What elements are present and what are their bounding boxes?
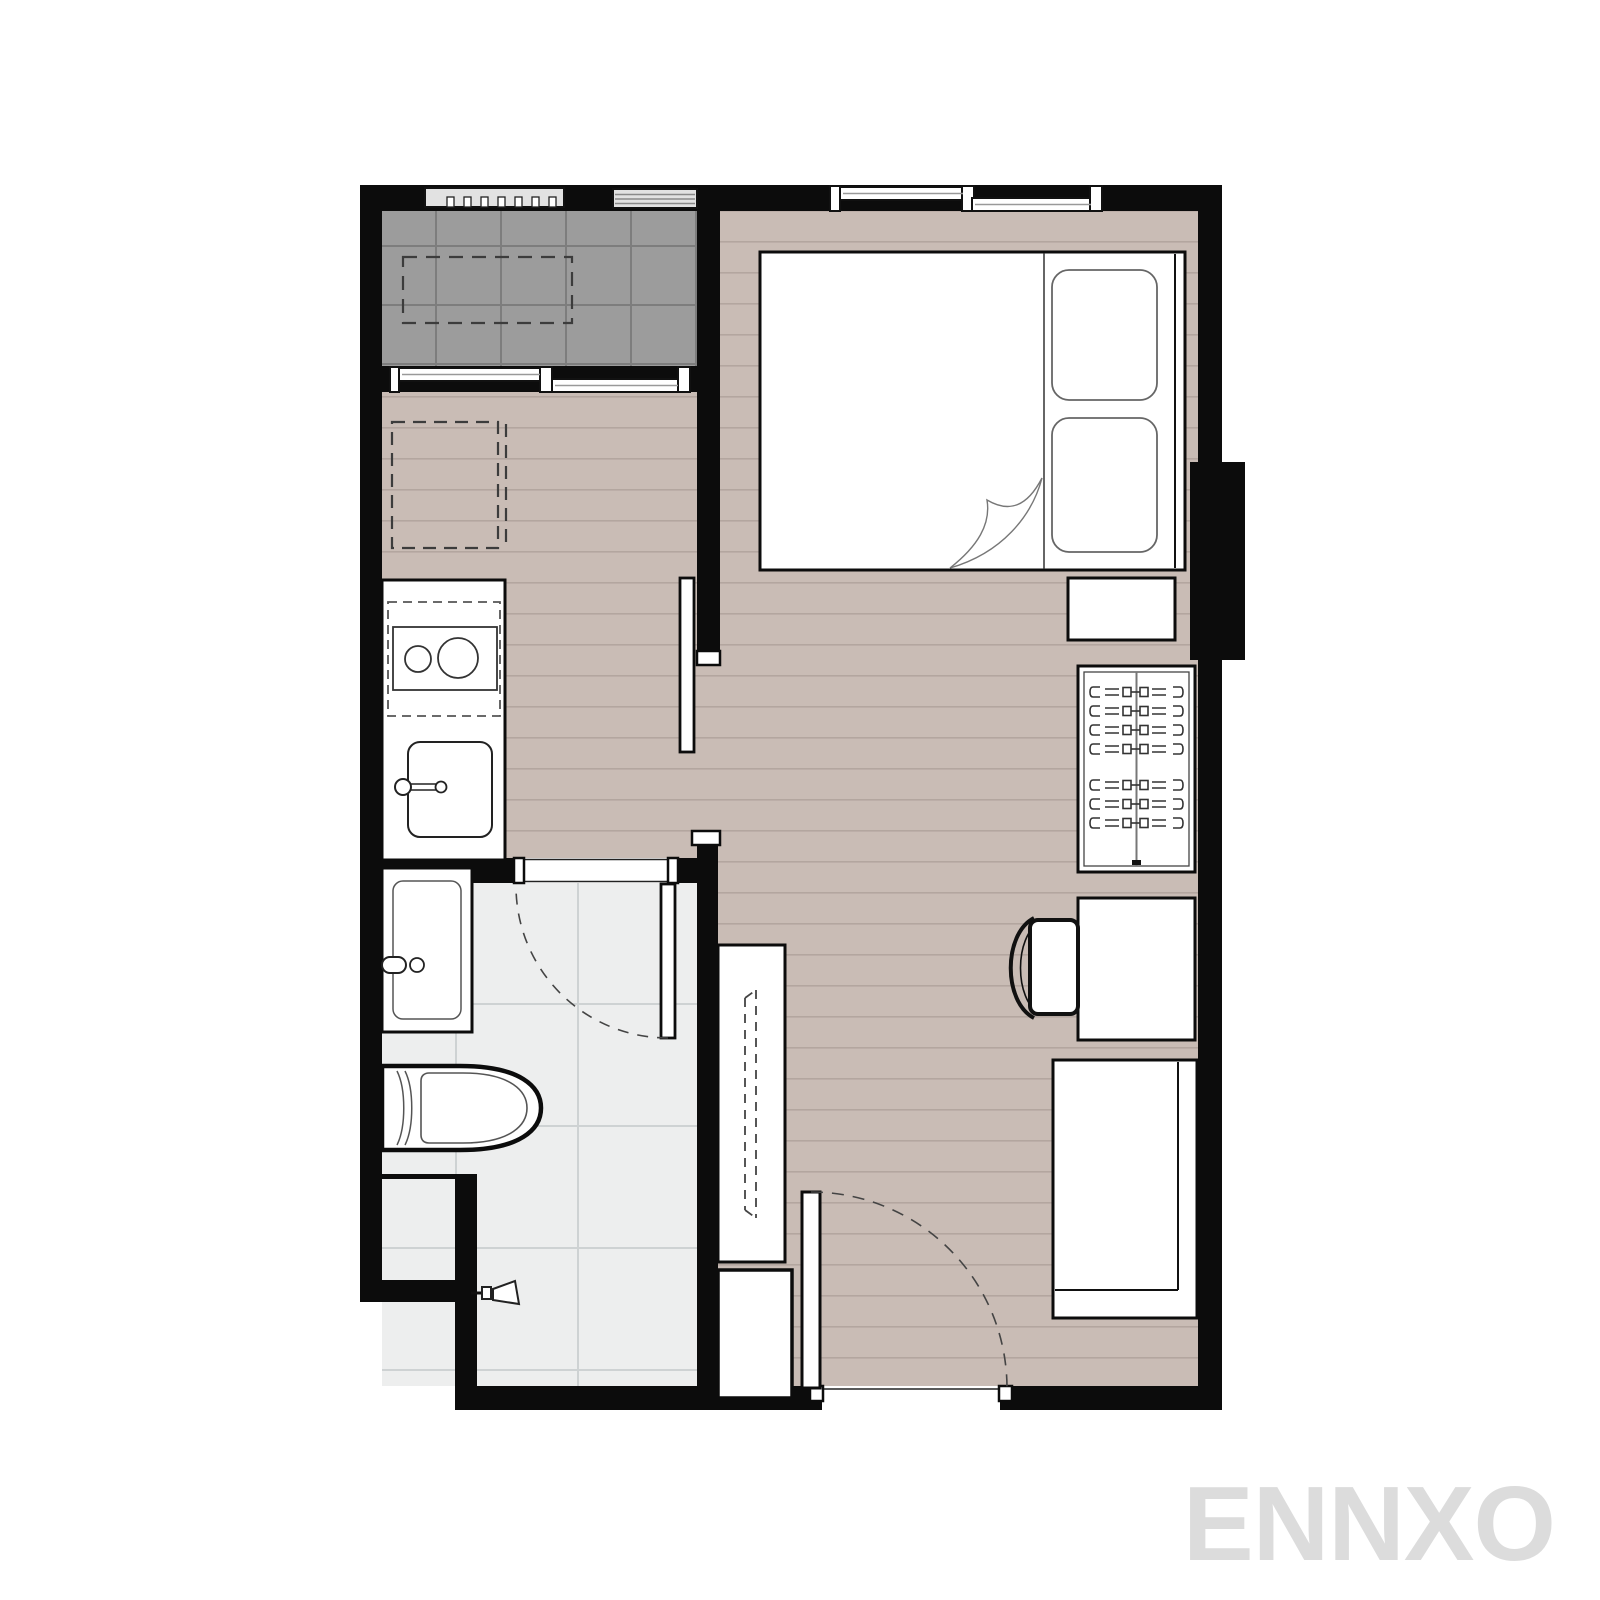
pillow [1052, 418, 1157, 552]
kitchen-sink [395, 742, 492, 837]
window-post [540, 367, 552, 392]
pillow [1052, 270, 1157, 400]
desk [1078, 898, 1195, 1040]
wall-jog-bottomleft [360, 1280, 477, 1302]
window-post [1090, 186, 1102, 211]
door-leaf [661, 884, 675, 1038]
watermark-text: ENNXO [1183, 1465, 1555, 1583]
wall-bathroom-right [697, 845, 718, 1410]
faucet-handle [382, 957, 406, 973]
daybed-frame [1053, 1060, 1197, 1318]
daybed [1053, 1060, 1197, 1318]
sliding-door-leaf [680, 578, 694, 752]
burner-small [405, 646, 431, 672]
wardrobe [1078, 666, 1195, 872]
chair [1011, 918, 1078, 1018]
wall-left [360, 185, 382, 1302]
wall-cap-partition [697, 651, 720, 665]
faucet-spout [410, 958, 424, 972]
faucet-handle [395, 779, 411, 795]
wall-shaft-top [382, 1174, 455, 1179]
shower-bracket [482, 1287, 491, 1299]
window-post [390, 367, 399, 392]
tv-console [718, 945, 785, 1262]
wall-partition [697, 185, 720, 653]
door-stop [999, 1386, 1012, 1401]
toilet [382, 1066, 541, 1150]
wall-right-column [1190, 462, 1245, 660]
chair-seat [1030, 920, 1078, 1014]
floorplan-page: ENNXO [0, 0, 1600, 1600]
toilet-seat [421, 1073, 527, 1143]
balcony-louver-a [425, 188, 564, 207]
door-stop [668, 858, 678, 883]
wall-right [1198, 185, 1222, 1410]
vanity [382, 868, 472, 1032]
window-post [678, 367, 690, 392]
door-leaf [802, 1192, 820, 1388]
shoe-cabinet [718, 1270, 792, 1398]
floor-balcony [382, 211, 697, 367]
faucet-spout [436, 782, 447, 793]
nightstand [1068, 578, 1175, 640]
balcony-louver-b [613, 189, 697, 208]
door-stop [514, 858, 524, 883]
door-opening [521, 858, 671, 883]
wardrobe-handle [1132, 860, 1141, 865]
wall-cap-bathwall [692, 831, 720, 845]
bathroom-sink [382, 868, 472, 1032]
floorplan-drawing: ENNXO [0, 0, 1600, 1600]
burner-large [438, 638, 478, 678]
window-post [830, 186, 840, 211]
louver-a-bar [425, 188, 564, 207]
